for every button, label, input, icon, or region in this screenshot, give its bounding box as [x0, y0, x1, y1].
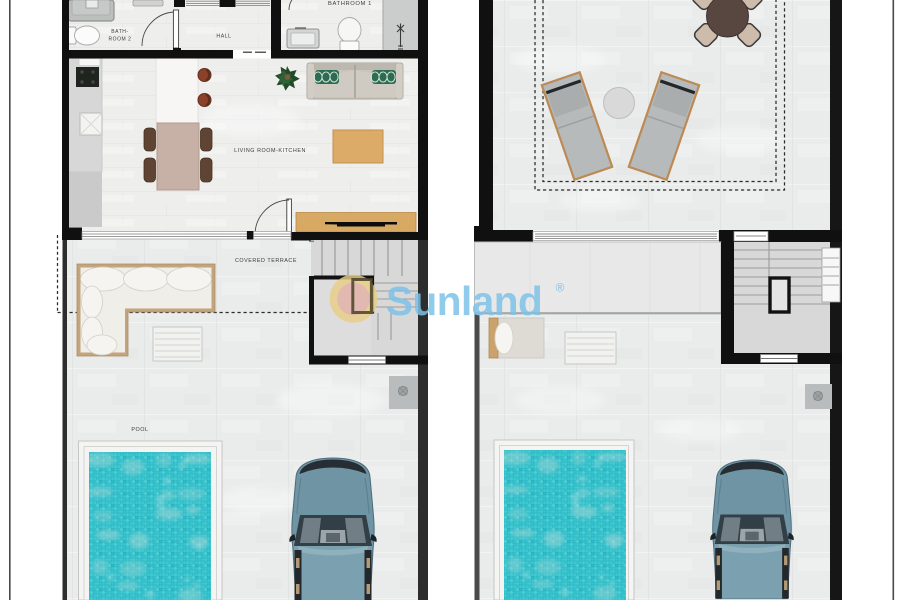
- svg-text:HALL: HALL: [216, 34, 231, 40]
- svg-text:COVERED TERRACE: COVERED TERRACE: [235, 258, 297, 264]
- svg-text:®: ®: [556, 281, 565, 295]
- svg-text:LIVING ROOM-KITCHEN: LIVING ROOM-KITCHEN: [234, 148, 306, 154]
- svg-text:BATHROOM 1: BATHROOM 1: [328, 1, 372, 7]
- svg-text:Sunland: Sunland: [386, 278, 542, 324]
- svg-text:POOL: POOL: [131, 427, 148, 433]
- svg-text:ROOM 2: ROOM 2: [108, 37, 131, 43]
- svg-text:BATH-: BATH-: [111, 29, 128, 35]
